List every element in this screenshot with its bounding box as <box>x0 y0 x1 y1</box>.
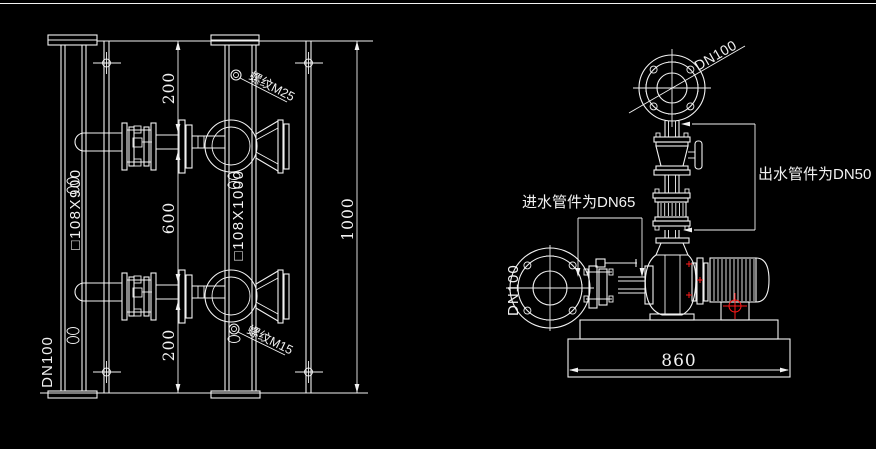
branch-upper <box>75 120 289 189</box>
top-flange-dn-label: DN100 <box>692 37 740 74</box>
dim-bottom-label: 200 <box>160 329 178 362</box>
inlet-note-label: 进水管件为DN65 <box>522 194 635 211</box>
top-outlet-flange: DN100 <box>629 37 745 127</box>
cad-drawing-window: 螺纹M25 螺纹M15 200 600 200 1000 <box>0 0 876 449</box>
suction-header-size-label: □108X900 <box>67 168 84 249</box>
outlet-leader: 出水管件为DN50 <box>681 122 871 233</box>
outlet-pipe-stack <box>653 121 702 255</box>
small-pipe-left <box>93 41 121 393</box>
dim-overall-label: 1000 <box>339 197 357 240</box>
dim-middle-label: 600 <box>160 202 178 235</box>
motor-unit <box>686 258 769 320</box>
inlet-valve <box>584 259 637 308</box>
pump-casing <box>645 255 696 320</box>
pump-top-view-upper <box>205 120 289 189</box>
outlet-note-label: 出水管件为DN50 <box>758 166 871 183</box>
inlet-flange-dn-label: DN100 <box>505 264 522 316</box>
flex-coupling <box>653 189 690 230</box>
inlet-piping: DN100 <box>505 245 645 331</box>
base-dim-label: 860 <box>661 351 696 371</box>
small-pipe-right <box>295 41 323 393</box>
outlet-valve <box>654 133 702 175</box>
thread-callout-top: 螺纹M25 <box>231 69 297 104</box>
gate-valve-lower <box>122 273 156 320</box>
thread-note-top-label: 螺纹M25 <box>247 69 297 104</box>
base-frame: 860 <box>568 320 790 377</box>
right-pump-view: DN100 <box>505 37 871 377</box>
cad-drawing-canvas[interactable]: 螺纹M25 螺纹M15 200 600 200 1000 <box>0 0 876 449</box>
inlet-leader: 进水管件为DN65 <box>522 194 644 277</box>
left-elevation-view: 螺纹M25 螺纹M15 200 600 200 1000 <box>39 35 373 398</box>
dim-chain: 200 600 200 <box>160 41 180 393</box>
discharge-header-size-label: □108X1000 <box>230 170 247 261</box>
thread-callout-bottom: 螺纹M15 <box>229 323 295 357</box>
suction-header-dn-label: DN100 <box>39 336 56 388</box>
dim-overall: 1000 <box>339 41 359 393</box>
gate-valve-upper <box>122 123 156 170</box>
dim-top-label: 200 <box>160 72 178 105</box>
